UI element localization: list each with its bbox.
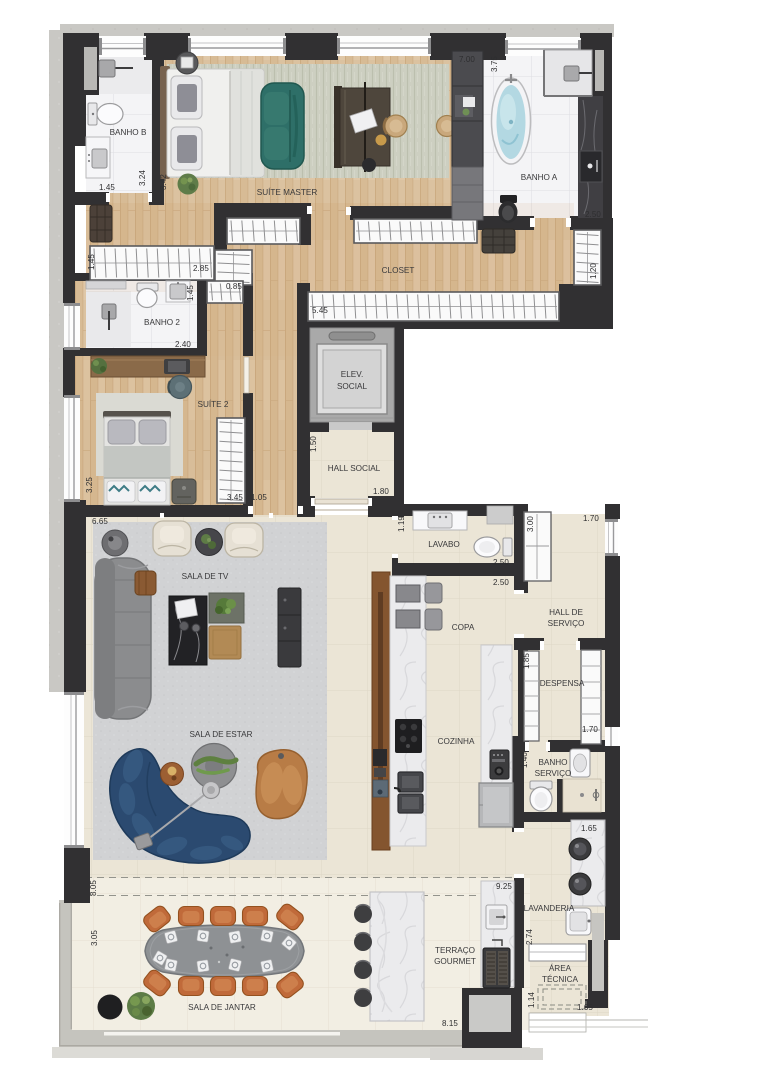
- svg-text:2.50: 2.50: [493, 578, 509, 587]
- svg-text:1.85: 1.85: [522, 653, 531, 669]
- svg-text:3.05: 3.05: [90, 930, 99, 946]
- svg-text:1.45: 1.45: [87, 254, 96, 270]
- svg-text:BANHO: BANHO: [538, 758, 567, 767]
- svg-text:SALA DE ESTAR: SALA DE ESTAR: [189, 730, 252, 739]
- svg-text:3.25: 3.25: [85, 477, 94, 493]
- svg-text:8.15: 8.15: [442, 1019, 458, 1028]
- svg-text:1.65: 1.65: [581, 824, 597, 833]
- svg-text:SALA DE JANTAR: SALA DE JANTAR: [188, 1003, 256, 1012]
- svg-text:LAVANDERIA: LAVANDERIA: [524, 904, 575, 913]
- svg-text:1.19: 1.19: [397, 516, 406, 532]
- svg-text:7.00: 7.00: [459, 55, 475, 64]
- svg-text:3.00: 3.00: [526, 516, 535, 532]
- svg-text:3.42: 3.42: [159, 174, 168, 190]
- svg-text:SOCIAL: SOCIAL: [337, 382, 367, 391]
- svg-text:2.40: 2.40: [175, 340, 191, 349]
- svg-text:1.45: 1.45: [99, 183, 115, 192]
- svg-text:9.25: 9.25: [496, 882, 512, 891]
- svg-text:BANHO 2: BANHO 2: [144, 318, 180, 327]
- svg-text:BANHO A: BANHO A: [521, 173, 558, 182]
- svg-text:CLOSET: CLOSET: [382, 266, 415, 275]
- svg-text:5.45: 5.45: [312, 306, 328, 315]
- svg-text:2.50: 2.50: [585, 210, 601, 219]
- svg-text:6.65: 6.65: [92, 517, 108, 526]
- svg-text:HALL SOCIAL: HALL SOCIAL: [328, 464, 381, 473]
- svg-text:SERVIÇO: SERVIÇO: [548, 619, 585, 628]
- svg-text:SUÍTE MASTER: SUÍTE MASTER: [257, 187, 318, 197]
- svg-text:GOURMET: GOURMET: [434, 957, 476, 966]
- svg-text:1.45: 1.45: [186, 285, 195, 301]
- svg-text:COZINHA: COZINHA: [438, 737, 475, 746]
- svg-text:1.70: 1.70: [583, 514, 599, 523]
- svg-text:3.24: 3.24: [138, 170, 147, 186]
- svg-text:BANHO B: BANHO B: [110, 128, 147, 137]
- svg-text:3.45: 3.45: [227, 493, 243, 502]
- svg-text:8.05: 8.05: [89, 880, 98, 896]
- svg-text:2.50: 2.50: [493, 558, 509, 567]
- svg-text:1.14: 1.14: [527, 992, 536, 1008]
- svg-text:1.05: 1.05: [251, 493, 267, 502]
- svg-text:ELEV.: ELEV.: [341, 370, 363, 379]
- svg-text:SALA DE TV: SALA DE TV: [182, 572, 229, 581]
- svg-text:1.65: 1.65: [577, 1003, 593, 1012]
- svg-text:COPA: COPA: [452, 623, 475, 632]
- svg-text:LAVABO: LAVABO: [428, 540, 460, 549]
- svg-text:DESPENSA: DESPENSA: [540, 679, 585, 688]
- svg-text:TÉCNICA: TÉCNICA: [542, 974, 578, 984]
- svg-text:SERVIÇO: SERVIÇO: [535, 769, 572, 778]
- svg-text:2.74: 2.74: [525, 929, 534, 945]
- svg-text:1.20: 1.20: [589, 263, 598, 279]
- svg-text:1.70: 1.70: [582, 725, 598, 734]
- svg-text:HALL DE: HALL DE: [549, 608, 583, 617]
- svg-text:1.80: 1.80: [373, 487, 389, 496]
- svg-text:1.40: 1.40: [520, 752, 529, 768]
- svg-text:2.85: 2.85: [193, 264, 209, 273]
- svg-text:1.50: 1.50: [309, 436, 318, 452]
- svg-text:0.85: 0.85: [226, 282, 242, 291]
- svg-text:TERRAÇO: TERRAÇO: [435, 946, 475, 955]
- svg-text:3.75: 3.75: [490, 56, 499, 72]
- svg-text:SUÍTE 2: SUÍTE 2: [198, 399, 229, 409]
- svg-text:ÁREA: ÁREA: [549, 963, 572, 973]
